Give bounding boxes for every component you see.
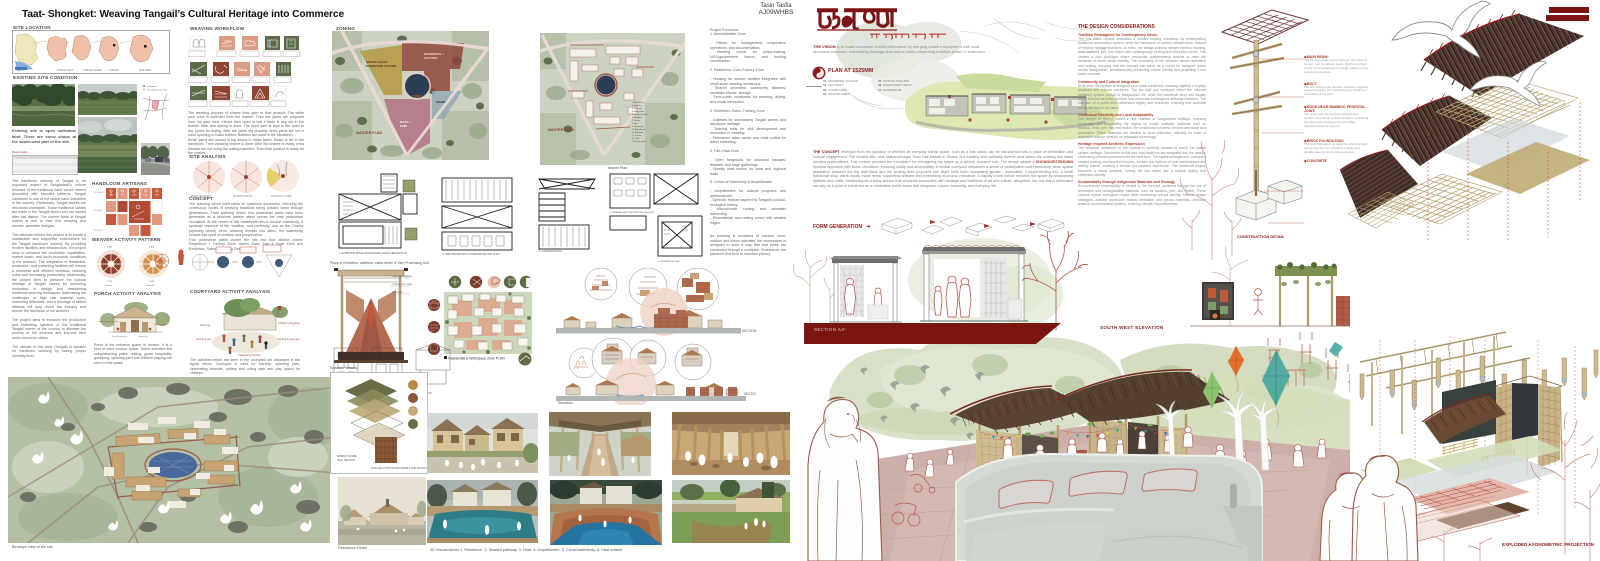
svg-text:Spinner: Spinner (147, 284, 155, 287)
svg-text:ADMIN: ADMIN (436, 100, 446, 104)
svg-text:FAIR: FAIR (400, 124, 408, 128)
svg-text:Lamp/hanging perch: Lamp/hanging perch (98, 320, 119, 323)
svg-text:Rest/hospitality: Rest/hospitality (112, 335, 128, 338)
svg-text:8. Haat: 8. Haat (632, 122, 638, 125)
svg-text:TANGAIL DIST: TANGAIL DIST (57, 69, 74, 72)
svg-text:Cultivation: Cultivation (147, 85, 156, 88)
svg-text:9. Fair ground: 9. Fair ground (632, 126, 643, 128)
svg-text:SITE AREA: SITE AREA (139, 69, 152, 72)
svg-text:Children playgame: Children playgame (278, 321, 300, 325)
svg-text:Putting drying yarn: Putting drying yarn (278, 337, 300, 341)
svg-text:6 PM: 6 PM (107, 281, 112, 283)
svg-text:11. Waterbody: 11. Waterbody (632, 131, 644, 134)
svg-text:14. Prayer space: 14. Prayer space (632, 141, 646, 143)
svg-text:EXPLODED AXONOMETRIC PROJECTIO: EXPLODED AXONOMETRIC PROJECTION (1502, 542, 1595, 547)
svg-text:6 AM: 6 AM (107, 246, 112, 249)
svg-text:BAMBOO FRAME: BAMBOO FRAME (337, 455, 357, 458)
svg-text:TANGAIL: TANGAIL (109, 69, 120, 72)
svg-text:SUN PATH + WIND: SUN PATH + WIND (271, 195, 292, 198)
svg-text:MASTER PLAN: MASTER PLAN (548, 128, 574, 132)
svg-text:4. WEAVING FACTORY PROCESSING: 4. WEAVING FACTORY PROCESSING UNIT (610, 211, 655, 214)
svg-text:Spinning yarn: Spinning yarn (196, 337, 212, 341)
svg-text:6. Residence: 6. Residence (632, 117, 643, 119)
svg-text:Weaving: Weaving (200, 323, 211, 327)
svg-text:13. Toilet: 13. Toilet (632, 137, 640, 140)
svg-text:FACTORY: FACTORY (424, 56, 438, 60)
svg-text:4. Sales center: 4. Sales center (632, 110, 644, 113)
svg-text:Elevations: Elevations (558, 401, 573, 405)
svg-text:Tara Shops & tea stall: Tara Shops & tea stall (147, 89, 167, 92)
svg-text:SECTION aa': SECTION aa' (742, 329, 756, 333)
svg-text:Spinning yarn: Spinning yarn (154, 323, 168, 326)
svg-text:TK 2000: TK 2000 (94, 230, 103, 232)
svg-text:WALKWAY: WALKWAY (392, 291, 403, 294)
svg-text:Weaver: Weaver (105, 284, 113, 287)
svg-text:SECTION bb': SECTION bb' (744, 392, 756, 396)
svg-text:Gossiping: Gossiping (138, 336, 149, 338)
svg-text:TK 5000: TK 5000 (94, 210, 103, 212)
svg-text:1. Admin block: 1. Admin block (632, 101, 644, 104)
svg-text:7. Factory: 7. Factory (632, 119, 640, 122)
svg-text:5. RESIDENCE PLAN: 5. RESIDENCE PLAN (658, 260, 680, 263)
svg-text:MASTER PLAN: MASTER PLAN (356, 131, 382, 135)
svg-text:JUTE WALL WITH WOVEN PANELS FO: JUTE WALL WITH WOVEN PANELS FOR VENTILAT… (371, 467, 427, 470)
svg-text:WALL SECTION: WALL SECTION (337, 459, 355, 462)
svg-text:TANGAIL SADAR: TANGAIL SADAR (83, 69, 102, 72)
svg-text:STRING PULL SEATING: STRING PULL SEATING (392, 283, 412, 286)
svg-text:2. YARN PROCESSING & WAREHOUSE: 2. YARN PROCESSING & WAREHOUSE UNIT PLAN (442, 253, 500, 256)
svg-text:3. CAFETERIA PLAN: 3. CAFETERIA PLAN (539, 250, 562, 253)
svg-text:EXHIBITION CENTER: EXHIBITION CENTER (366, 64, 397, 68)
svg-text:1. EXHIBITION SPACE SHOWCASING: 1. EXHIBITION SPACE SHOWCASING SALES CEN… (339, 252, 407, 255)
svg-text:Celebrating festival: Celebrating festival (238, 353, 260, 357)
svg-text:3. Cafeteria: 3. Cafeteria (632, 107, 641, 110)
svg-text:12. Parking: 12. Parking (632, 135, 641, 137)
svg-text:TK 10000: TK 10000 (94, 192, 104, 194)
svg-text:ACCESS POINTS: ACCESS POINTS (233, 195, 253, 198)
svg-text:2. Exhibition: 2. Exhibition (632, 104, 642, 107)
svg-text:10. Amphitheater: 10. Amphitheater (632, 128, 646, 131)
svg-text:5. Yarn processing: 5. Yarn processing (632, 114, 647, 116)
svg-text:THATCHED BAMBOO ROOF: THATCHED BAMBOO ROOF (392, 275, 412, 278)
